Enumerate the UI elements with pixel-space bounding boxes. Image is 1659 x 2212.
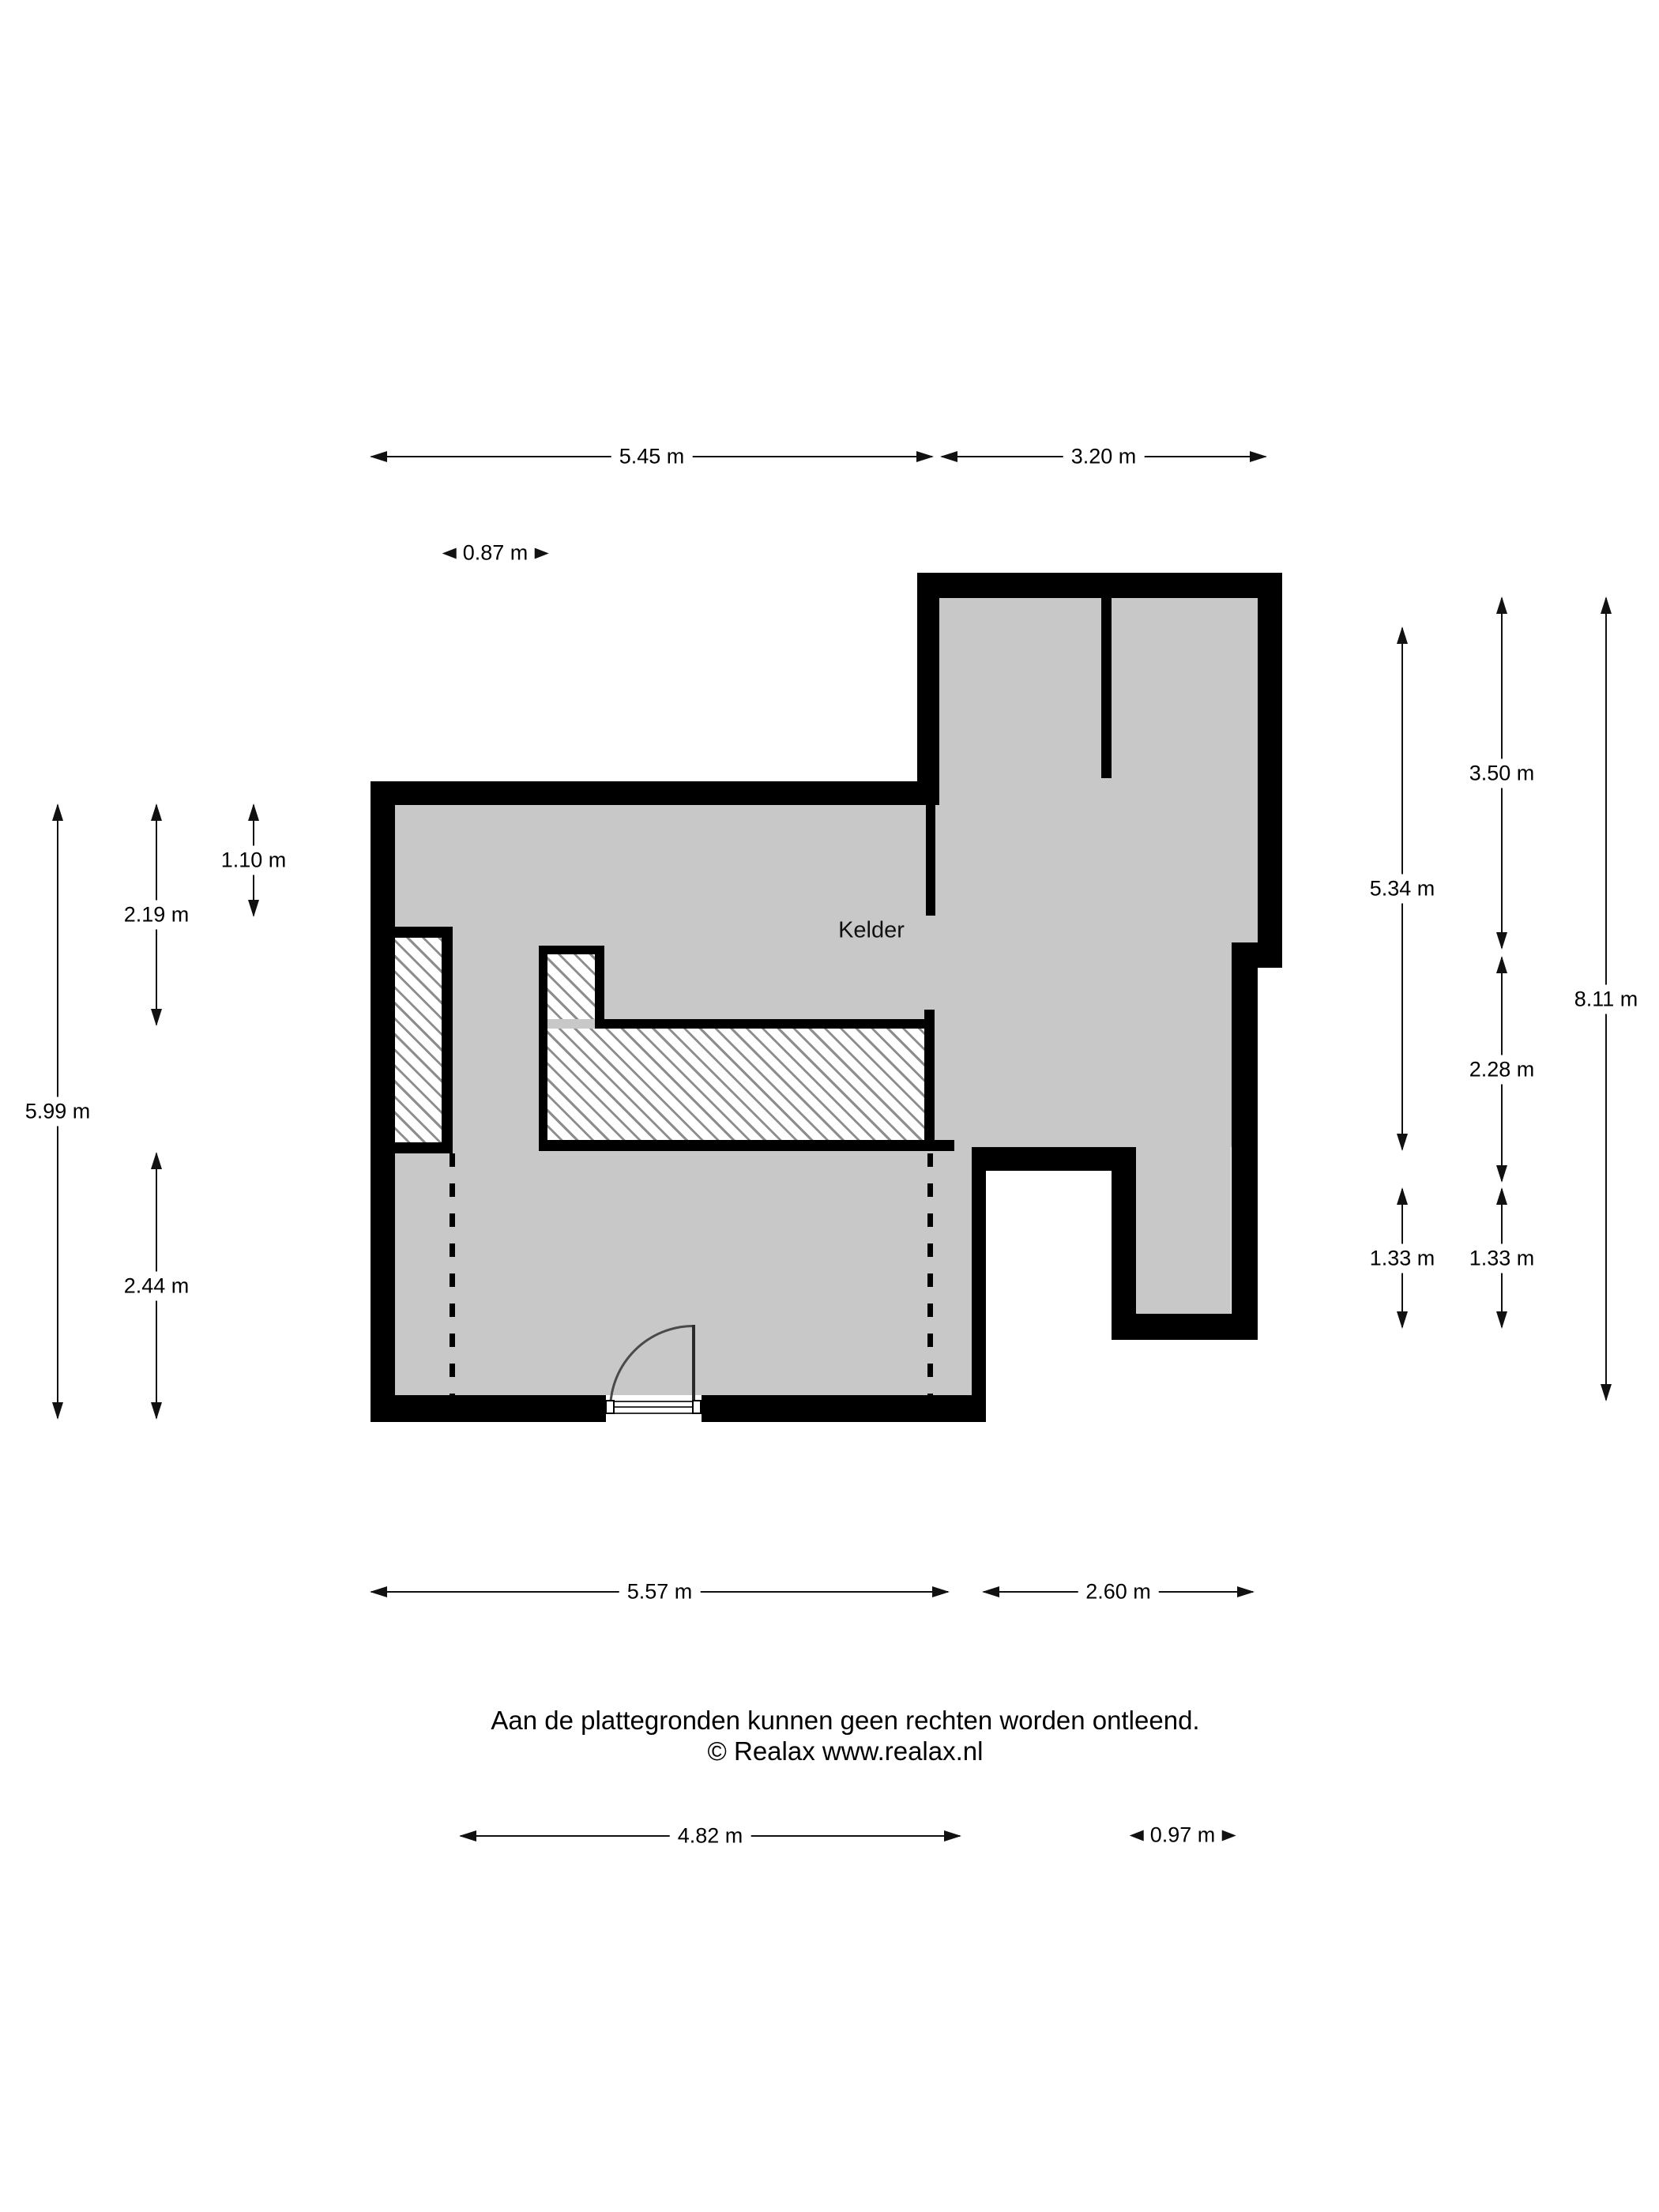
dashed-line-right	[927, 1153, 933, 1398]
hatch-center-bar	[547, 1029, 924, 1140]
wall-bar-top	[604, 1019, 935, 1029]
dim-right-room-height: 5.34 m	[1401, 628, 1403, 1149]
dim-top-right-label: 3.20 m	[1063, 442, 1145, 472]
footer-disclaimer: Aan de plattegronden kunnen geen rechten…	[332, 1705, 1359, 1766]
dim-left-upper: 2.19 m	[156, 805, 157, 1025]
wall-right-section-lowleft	[1112, 1147, 1136, 1340]
dim-bottom-right-label: 2.60 m	[1078, 1578, 1159, 1607]
dim-right-lower-left-label: 1.33 m	[1362, 1243, 1443, 1273]
dim-bottom-main: 5.57 m	[371, 1591, 948, 1593]
wall-main-top	[371, 781, 939, 805]
dim-right-room-height-label: 5.34 m	[1362, 875, 1443, 904]
wall-strip-bottom	[371, 1142, 453, 1153]
dim-left-lower: 2.44 m	[156, 1153, 157, 1418]
floor-right-section-lower	[1136, 1147, 1231, 1314]
dim-bottom-main-label: 5.57 m	[619, 1578, 701, 1607]
dim-right-top-label: 3.50 m	[1461, 758, 1543, 788]
door-jamb-left	[605, 1400, 615, 1414]
wall-bar-right	[924, 1021, 935, 1151]
wall-right-section-bottom	[1112, 1314, 1256, 1340]
wall-bottom-right-of-door	[702, 1395, 986, 1422]
dim-alcove-width: 0.87 m	[442, 541, 549, 566]
dim-left-lower-label: 2.44 m	[116, 1271, 197, 1300]
arrow-right-icon	[534, 547, 548, 559]
wall-square-left	[539, 946, 547, 1029]
dim-left-opening-label: 1.10 m	[213, 846, 295, 875]
wall-right-section-top	[917, 573, 1282, 598]
footer-line1: Aan de plattegronden kunnen geen rechten…	[332, 1705, 1359, 1736]
dim-bottom-inner: 4.82 m	[461, 1835, 960, 1837]
door-jamb-right	[692, 1400, 702, 1414]
dim-right-lower: 1.33 m	[1501, 1189, 1503, 1327]
dim-bottom-right: 2.60 m	[984, 1591, 1253, 1593]
dim-alcove-width-label: 0.87 m	[463, 541, 529, 566]
dim-right-top: 3.50 m	[1501, 598, 1503, 948]
wall-bottom-left-of-door	[371, 1395, 606, 1422]
dim-left-total-label: 5.99 m	[17, 1097, 99, 1127]
hatch-small-square	[547, 954, 595, 1019]
dim-right-middle-label: 2.28 m	[1461, 1055, 1543, 1084]
dim-right-lower-label: 1.33 m	[1461, 1243, 1543, 1273]
room-label-kelder: Kelder	[838, 918, 905, 944]
dim-right-total-label: 8.11 m	[1567, 984, 1646, 1014]
wall-right-section-right-lower	[1232, 942, 1258, 1340]
footer-line2: © Realax www.realax.nl	[332, 1736, 1359, 1766]
dim-top-right: 3.20 m	[942, 456, 1266, 457]
wall-bar-left	[539, 1019, 547, 1151]
wall-main-right-lower	[972, 1147, 986, 1422]
hatch-left-strip	[395, 938, 442, 1142]
floor-right-section-mid	[939, 942, 1232, 1147]
floor-right-section-upper	[939, 598, 1258, 942]
dim-left-total: 5.99 m	[57, 805, 58, 1418]
dim-bottom-small-label: 0.97 m	[1150, 1823, 1216, 1848]
dim-top-main-label: 5.45 m	[611, 442, 693, 472]
dim-left-upper-label: 2.19 m	[116, 901, 197, 930]
wall-interior-stub-top	[1101, 598, 1112, 778]
wall-right-section-right-upper	[1258, 573, 1282, 968]
dim-left-opening: 1.10 m	[253, 805, 254, 916]
wall-strip-right	[442, 927, 453, 1153]
wall-strip-top	[371, 927, 453, 938]
dim-right-lower-left: 1.33 m	[1401, 1189, 1403, 1327]
arrow-right-icon	[1221, 1830, 1236, 1841]
dim-bottom-inner-label: 4.82 m	[670, 1822, 751, 1851]
door-leaf	[692, 1325, 695, 1412]
wall-main-left	[371, 781, 395, 1422]
wall-right-section-left	[917, 573, 939, 781]
dim-bottom-small: 0.97 m	[1130, 1823, 1236, 1848]
dim-right-total: 8.11 m	[1605, 598, 1607, 1400]
wall-square-right	[595, 946, 604, 1029]
arrow-left-icon	[442, 547, 457, 559]
floorplan-page: Kelder 5.45 m 3.20 m 0.87 m 5.99 m 2.19 …	[0, 0, 1659, 2212]
arrow-left-icon	[1130, 1830, 1144, 1841]
dim-top-main: 5.45 m	[371, 456, 932, 457]
wall-divider-upper	[926, 805, 935, 916]
wall-bar-bottom	[539, 1140, 954, 1151]
door-threshold	[615, 1401, 692, 1414]
dim-right-middle: 2.28 m	[1501, 957, 1503, 1181]
dashed-line-left	[450, 1153, 455, 1398]
